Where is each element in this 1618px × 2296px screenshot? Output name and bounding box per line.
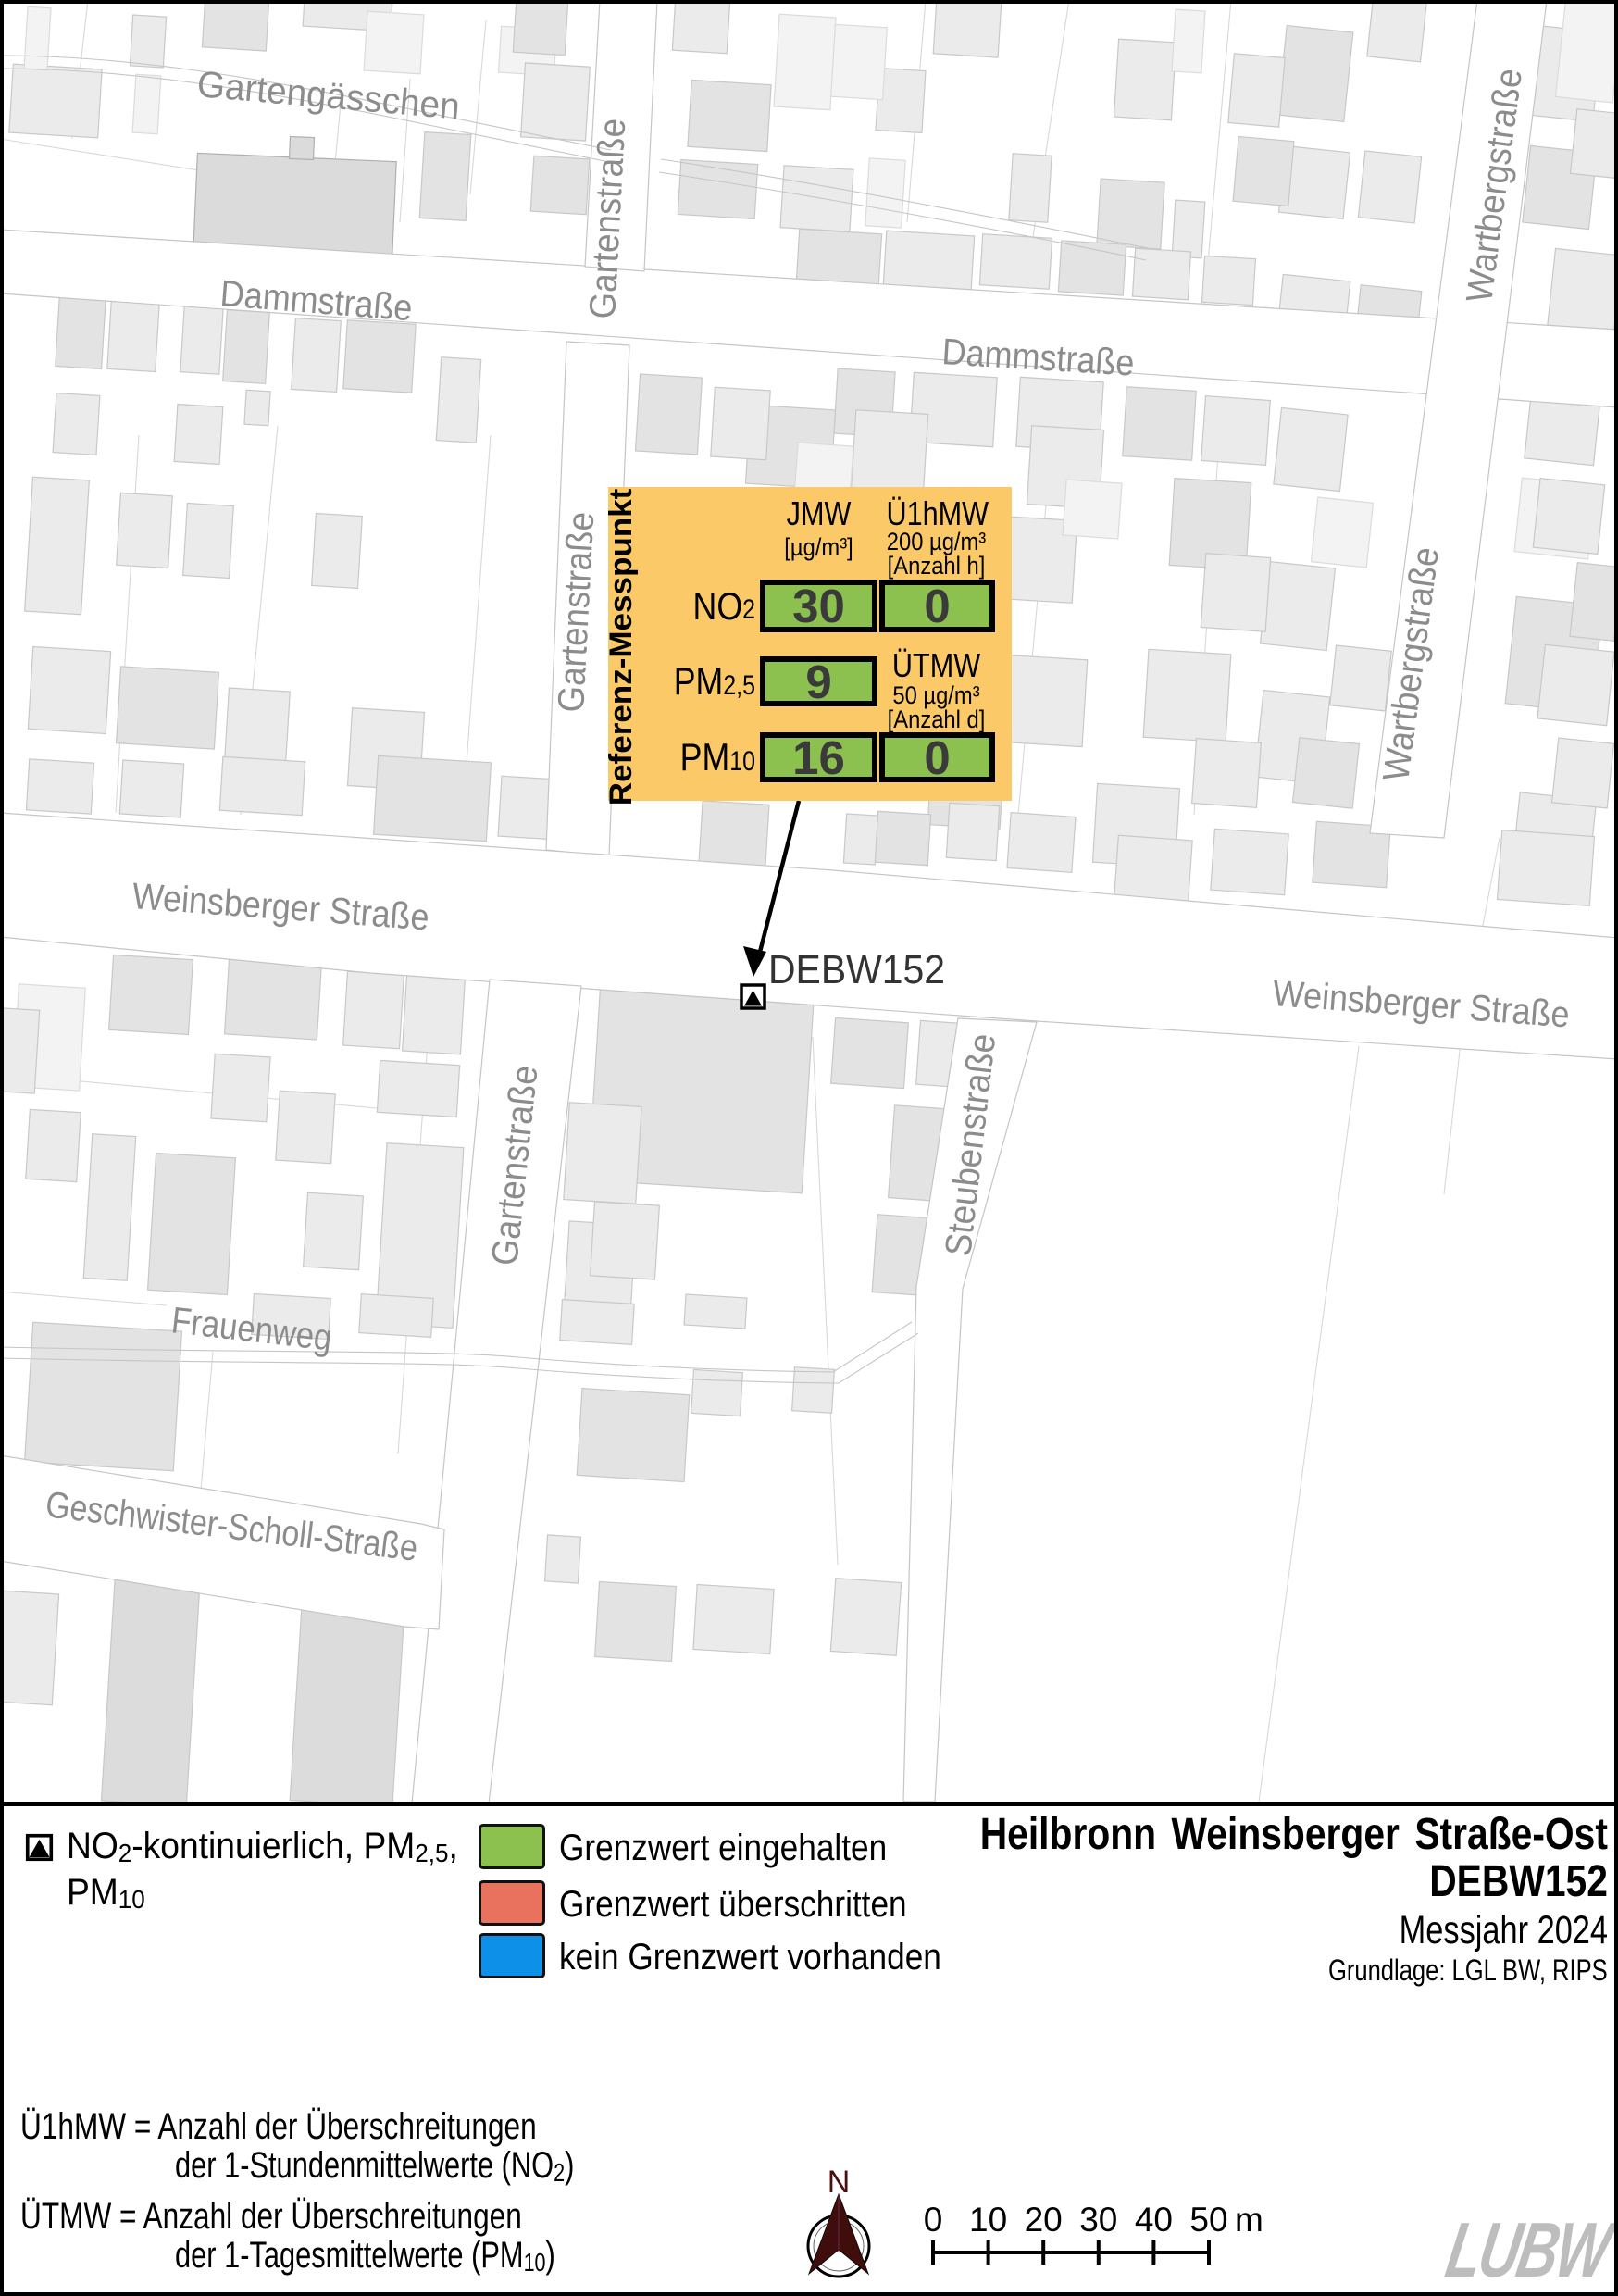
svg-text:50: 50 (1189, 2201, 1227, 2239)
svg-text:m: m (1235, 2201, 1263, 2239)
svg-text:10: 10 (969, 2201, 1007, 2239)
svg-text:20: 20 (1025, 2201, 1063, 2239)
svg-text:N: N (828, 2168, 851, 2200)
svg-text:30: 30 (1079, 2201, 1117, 2239)
svg-text:0: 0 (924, 2201, 942, 2239)
svg-text:40: 40 (1135, 2201, 1173, 2239)
